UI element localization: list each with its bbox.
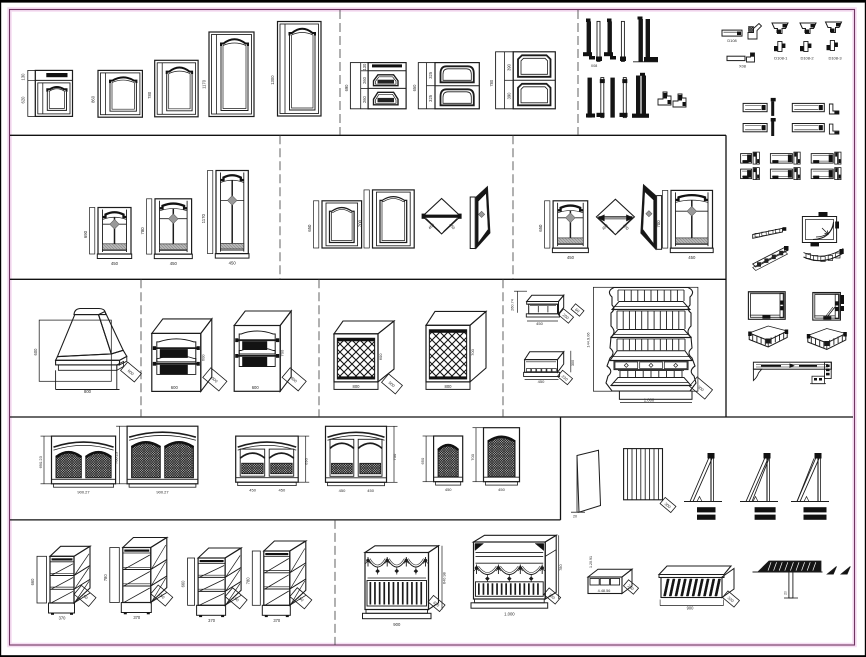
svg-text:450: 450 — [367, 488, 374, 493]
svg-text:600: 600 — [171, 385, 179, 390]
svg-text:325: 325 — [428, 94, 433, 102]
svg-text:600: 600 — [252, 385, 260, 390]
svg-text:600: 600 — [33, 348, 38, 356]
svg-text:370: 370 — [208, 618, 216, 623]
svg-text:370: 370 — [59, 616, 67, 621]
svg-text:800: 800 — [445, 384, 453, 389]
svg-text:700: 700 — [470, 453, 475, 460]
svg-text:370: 370 — [273, 618, 281, 623]
svg-text:D108-2: D108-2 — [800, 56, 814, 61]
svg-text:650: 650 — [307, 224, 312, 232]
svg-text:650: 650 — [412, 84, 417, 92]
svg-text:700: 700 — [470, 348, 475, 355]
svg-text:600: 600 — [200, 354, 205, 361]
svg-text:450: 450 — [229, 261, 237, 266]
svg-text:1.000: 1.000 — [504, 612, 515, 617]
svg-text:450: 450 — [170, 261, 178, 266]
svg-text:700.23: 700.23 — [114, 451, 119, 464]
svg-text:450: 450 — [339, 488, 346, 493]
svg-text:D108-1: D108-1 — [774, 56, 788, 61]
svg-text:700: 700 — [358, 219, 363, 227]
svg-text:20: 20 — [573, 515, 577, 519]
svg-text:660: 660 — [181, 580, 186, 588]
svg-text:450: 450 — [567, 255, 575, 260]
svg-text:780: 780 — [245, 577, 250, 585]
svg-text:450: 450 — [688, 255, 696, 260]
svg-text:900.27: 900.27 — [156, 489, 169, 494]
svg-text:450: 450 — [538, 379, 545, 384]
svg-text:780: 780 — [558, 564, 563, 571]
svg-text:4.48.56: 4.48.56 — [598, 589, 611, 593]
svg-text:900: 900 — [393, 622, 401, 627]
svg-text:260: 260 — [362, 76, 367, 84]
svg-text:690: 690 — [344, 84, 349, 92]
svg-text:700: 700 — [656, 220, 661, 228]
svg-text:X08: X08 — [591, 64, 597, 68]
svg-text:325: 325 — [428, 71, 433, 79]
svg-text:660: 660 — [30, 578, 35, 586]
svg-text:1.20.91: 1.20.91 — [589, 556, 593, 568]
svg-text:650: 650 — [538, 224, 543, 232]
svg-text:900.27: 900.27 — [77, 489, 90, 494]
svg-text:450: 450 — [249, 488, 256, 493]
svg-text:780: 780 — [140, 227, 145, 235]
svg-text:144.9.06: 144.9.06 — [586, 332, 591, 347]
svg-text:690: 690 — [304, 457, 309, 464]
svg-text:800: 800 — [84, 389, 92, 394]
svg-text:450: 450 — [445, 487, 452, 492]
svg-text:D108-3: D108-3 — [828, 56, 842, 61]
svg-text:780: 780 — [489, 79, 494, 87]
svg-text:20: 20 — [784, 591, 788, 595]
svg-text:600: 600 — [378, 353, 383, 360]
svg-text:1.000: 1.000 — [644, 398, 655, 403]
svg-text:390: 390 — [506, 63, 511, 71]
svg-text:370: 370 — [133, 615, 141, 620]
svg-text:450: 450 — [536, 321, 543, 326]
svg-text:650: 650 — [420, 457, 425, 464]
svg-text:900: 900 — [687, 606, 695, 611]
svg-text:1300: 1300 — [270, 75, 275, 85]
svg-text:260.74: 260.74 — [511, 299, 515, 311]
svg-text:700: 700 — [280, 349, 285, 356]
svg-text:690: 690 — [83, 230, 88, 238]
svg-text:690.23: 690.23 — [38, 455, 43, 468]
svg-text:700: 700 — [392, 453, 397, 460]
svg-text:620: 620 — [20, 96, 25, 104]
svg-text:1170: 1170 — [201, 213, 206, 223]
svg-text:860: 860 — [91, 95, 96, 103]
svg-text:390: 390 — [506, 92, 511, 100]
svg-text:800: 800 — [353, 384, 361, 389]
svg-text:450: 450 — [498, 487, 505, 492]
svg-text:780: 780 — [103, 574, 108, 582]
svg-text:640.98: 640.98 — [442, 572, 447, 584]
svg-text:130: 130 — [20, 73, 25, 81]
svg-text:1170: 1170 — [202, 79, 207, 89]
svg-text:300: 300 — [571, 360, 575, 366]
svg-text:780: 780 — [147, 91, 152, 99]
svg-text:X08: X08 — [739, 64, 746, 69]
svg-text:450: 450 — [279, 488, 286, 493]
svg-text:450: 450 — [111, 261, 119, 266]
svg-text:130: 130 — [362, 63, 367, 71]
svg-text:D108: D108 — [727, 38, 736, 43]
svg-text:260: 260 — [362, 95, 367, 103]
